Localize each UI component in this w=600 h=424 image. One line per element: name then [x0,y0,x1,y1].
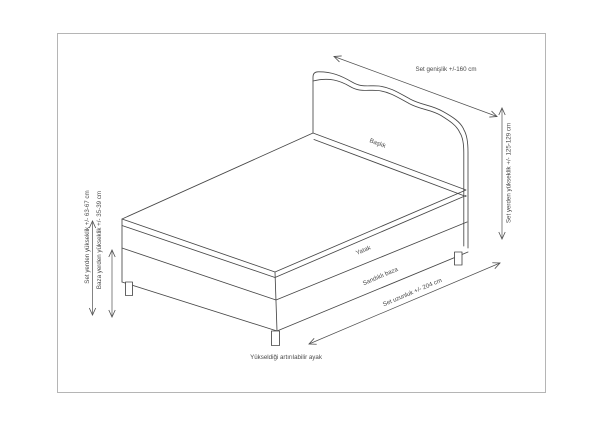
mattress-headboard-seam [314,140,466,197]
headboard-trim-line [313,79,464,246]
total-height-dimension-label: Set yerden yükseklik +/- 125-129 cm [506,123,513,223]
front-corner-edge [275,272,277,331]
diagram-canvas: Set genişlik +/-160 cm Set yerden yüksek… [0,0,600,424]
drawing-border [58,34,546,393]
mattress-label: Yatak [355,244,373,257]
base-height-dimension-label: Baza yerden yükseklik +/- 35-39 cm [96,191,103,289]
adjustable-leg-label: Yükseldiği artırılabilir ayak [250,354,323,361]
bed-drawing [122,72,468,346]
mattress-top-surface [122,133,466,272]
length-dimension-label: Set uzunluk +/- 204 cm [382,277,443,308]
dimension-lines [93,57,503,345]
width-dimension-label: Set genişlik +/-160 cm [415,66,476,73]
front-leg [272,331,280,346]
right-leg [455,252,463,265]
headboard-label: Başlık [368,137,387,150]
headboard-outline [313,72,468,248]
foot-left-leg [126,282,133,296]
bed-dimension-diagram: Set genişlik +/-160 cm Set yerden yüksek… [0,0,600,424]
set-height-dimension-label: Set yerden yükseklik +/- 63-67 cm [84,190,91,283]
storage-base-label: Sandıklı baza [362,266,400,287]
